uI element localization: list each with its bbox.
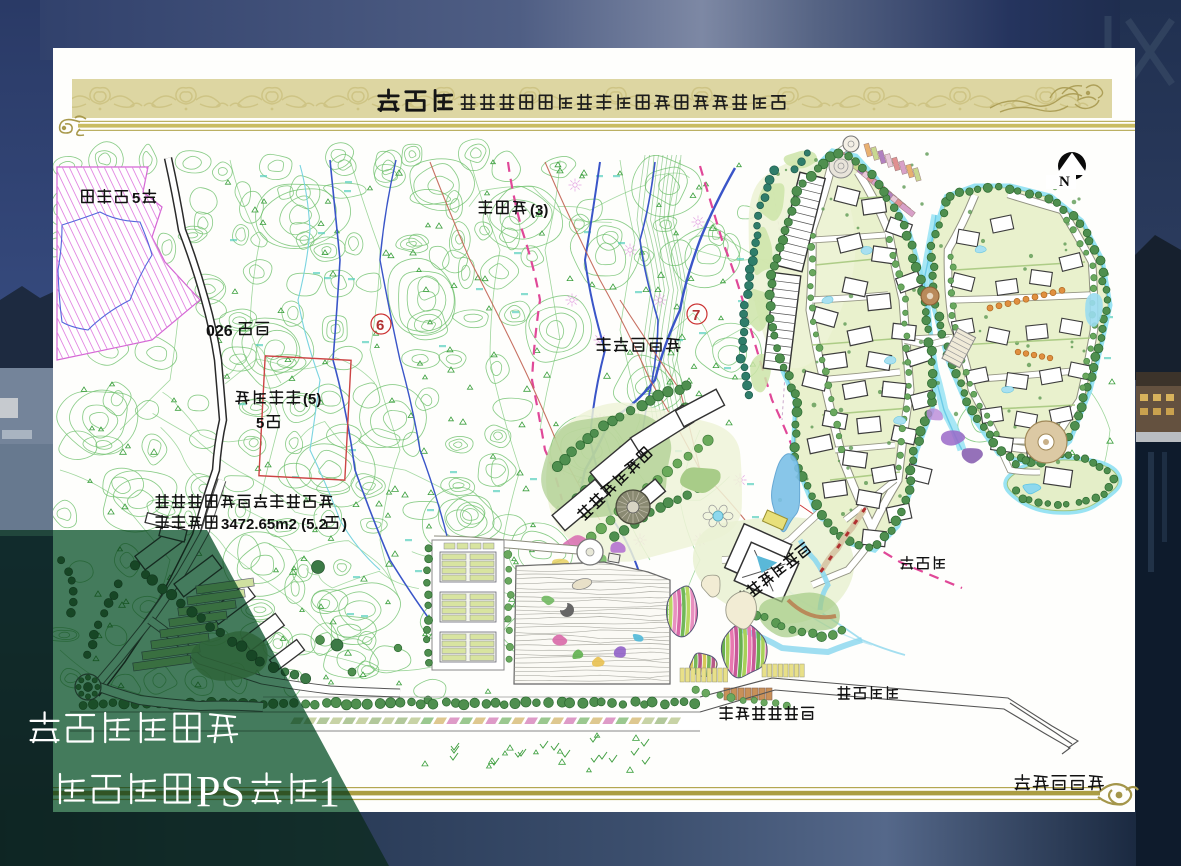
svg-text:N: N [1059,174,1070,190]
svg-text:5: 5 [256,415,264,432]
svg-text:3472.65m2 (5.2: 3472.65m2 (5.2 [221,516,327,533]
svg-text:6: 6 [376,317,384,334]
svg-text:5: 5 [132,190,140,207]
svg-text:): ) [342,516,347,533]
svg-text:(3): (3) [530,202,548,219]
svg-text:7: 7 [692,307,700,324]
svg-text:(5): (5) [303,391,321,408]
svg-text:1: 1 [318,767,340,816]
svg-text:PS: PS [196,767,245,816]
svg-text:026: 026 [206,323,233,340]
